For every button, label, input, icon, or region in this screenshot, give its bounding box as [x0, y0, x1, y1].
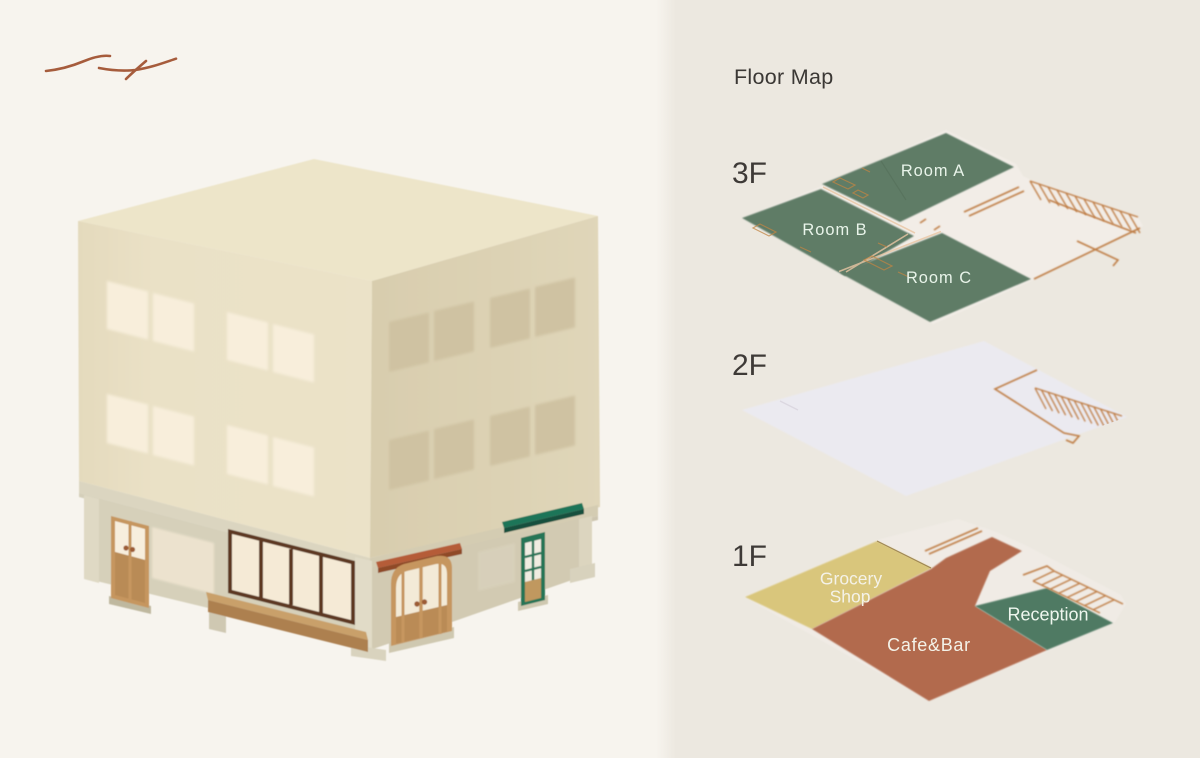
- svg-text:2F: 2F: [732, 349, 767, 382]
- svg-text:Room A: Room A: [901, 162, 965, 180]
- svg-text:Shop: Shop: [830, 587, 871, 607]
- svg-text:Room C: Room C: [906, 269, 972, 287]
- svg-text:3F: 3F: [732, 157, 767, 190]
- svg-text:Grocery: Grocery: [820, 569, 882, 589]
- svg-text:Cafe&Bar: Cafe&Bar: [887, 635, 971, 655]
- svg-text:1F: 1F: [732, 540, 767, 573]
- svg-text:Floor Map: Floor Map: [734, 65, 833, 89]
- svg-text:Reception: Reception: [1007, 605, 1088, 625]
- svg-text:Room B: Room B: [802, 221, 867, 239]
